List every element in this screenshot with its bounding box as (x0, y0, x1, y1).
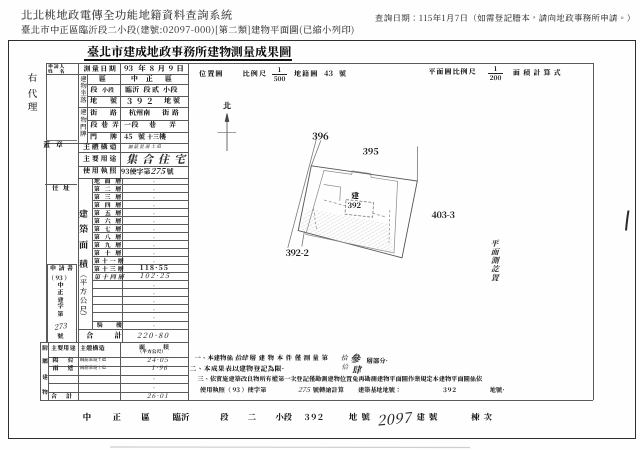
svg-text:392: 392 (348, 200, 362, 211)
svg-text:置: 置 (491, 272, 500, 283)
svg-text:396: 396 (312, 128, 329, 142)
svg-text:北: 北 (223, 101, 231, 112)
svg-text:395: 395 (363, 145, 380, 158)
svg-text:392-2: 392-2 (286, 246, 309, 259)
svg-text:403-3: 403-3 (432, 208, 455, 221)
